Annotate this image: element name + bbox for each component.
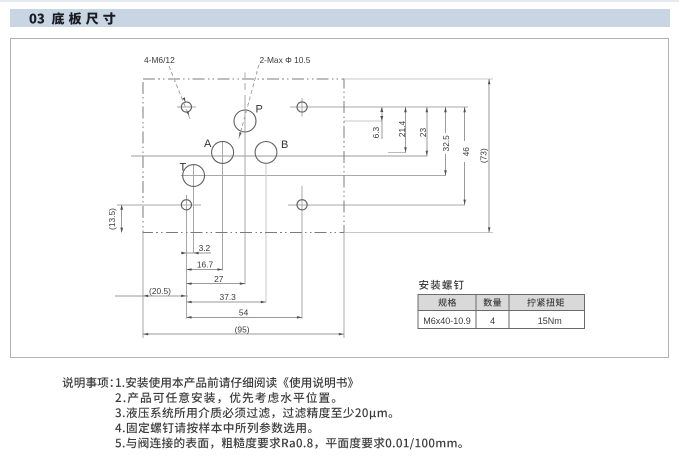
svg-text:23: 23	[418, 128, 428, 138]
svg-text:T: T	[180, 162, 187, 174]
svg-text:4-M6/12: 4-M6/12	[144, 55, 175, 65]
svg-text:B: B	[281, 139, 288, 151]
svg-text:M6x40-10.9: M6x40-10.9	[423, 316, 471, 326]
svg-text:16.7: 16.7	[197, 260, 214, 270]
svg-text:15Nm: 15Nm	[538, 316, 562, 326]
svg-text:A: A	[204, 138, 212, 150]
svg-text:2-Max Φ 10.5: 2-Max Φ 10.5	[260, 55, 311, 65]
svg-text:(95): (95)	[235, 324, 250, 334]
svg-text:21.4: 21.4	[397, 121, 407, 138]
svg-text:P: P	[256, 104, 263, 116]
svg-text:3.2: 3.2	[199, 243, 211, 253]
svg-text:27: 27	[214, 274, 224, 284]
svg-text:(20.5): (20.5)	[149, 286, 171, 296]
svg-text:37.3: 37.3	[220, 292, 237, 302]
svg-text:4: 4	[490, 316, 495, 326]
svg-text:46: 46	[461, 147, 471, 157]
svg-text:54: 54	[239, 308, 249, 318]
svg-text:32.5: 32.5	[441, 135, 451, 152]
svg-text:6.3: 6.3	[371, 126, 381, 138]
svg-text:(13.5): (13.5)	[107, 208, 117, 230]
svg-text:(73): (73)	[478, 148, 488, 163]
